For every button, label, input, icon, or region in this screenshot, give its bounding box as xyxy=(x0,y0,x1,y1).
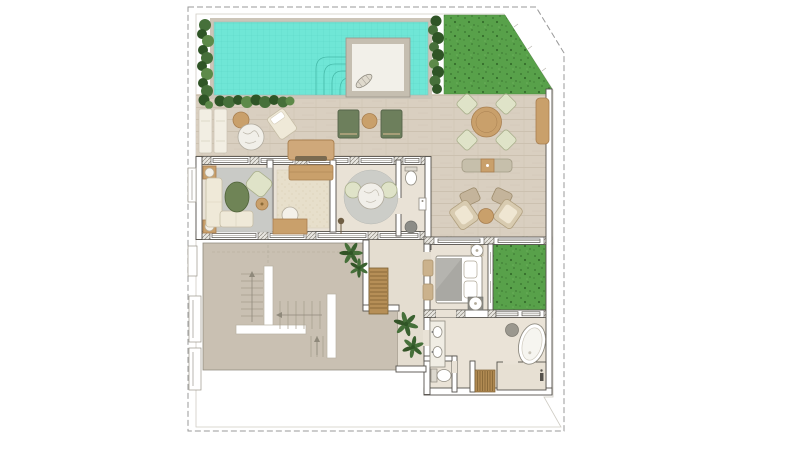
oval-coffee-table xyxy=(225,182,249,212)
side-bench xyxy=(536,98,549,144)
toilet-tank xyxy=(431,369,437,382)
pool-lounger-white xyxy=(214,109,227,153)
console xyxy=(289,165,333,180)
stair-wall xyxy=(327,294,336,358)
desk xyxy=(273,219,307,234)
foot-ottoman xyxy=(423,284,433,300)
stair-wall xyxy=(236,325,306,334)
toilet-tank xyxy=(405,167,417,171)
deck-side-table xyxy=(362,114,377,129)
shower-fixture xyxy=(540,373,544,381)
stair-wall xyxy=(264,266,273,328)
door-opening xyxy=(503,361,518,365)
marble-table xyxy=(238,124,264,150)
shower-head xyxy=(540,369,542,371)
pool-lounger-white xyxy=(199,109,212,153)
sink xyxy=(433,327,442,338)
hallway xyxy=(369,268,388,314)
floor-lamp xyxy=(338,218,344,224)
corner-decor xyxy=(205,168,214,177)
wc-sink xyxy=(419,198,426,210)
wc-toilet xyxy=(406,171,417,185)
sofa-bottom xyxy=(220,211,253,227)
door-opening xyxy=(436,310,456,318)
pillow xyxy=(464,261,477,278)
foot-ottoman xyxy=(423,260,433,276)
bistro-table xyxy=(358,183,384,209)
salon xyxy=(344,170,398,224)
lawn-side xyxy=(492,244,548,312)
coffee-side-table xyxy=(479,209,494,224)
shower-room xyxy=(497,362,546,390)
floor-plan xyxy=(0,0,800,450)
sink xyxy=(433,347,442,358)
bath-stool xyxy=(506,324,519,337)
toilet xyxy=(437,370,451,382)
pillow xyxy=(464,281,477,298)
living-room xyxy=(203,166,274,233)
lawn-upper xyxy=(444,15,552,94)
door-opening xyxy=(452,361,457,373)
wood-stair-down xyxy=(369,268,388,314)
pool-area xyxy=(210,18,432,99)
outdoor-sofa-seat xyxy=(295,156,327,161)
wc-stool xyxy=(405,221,417,233)
